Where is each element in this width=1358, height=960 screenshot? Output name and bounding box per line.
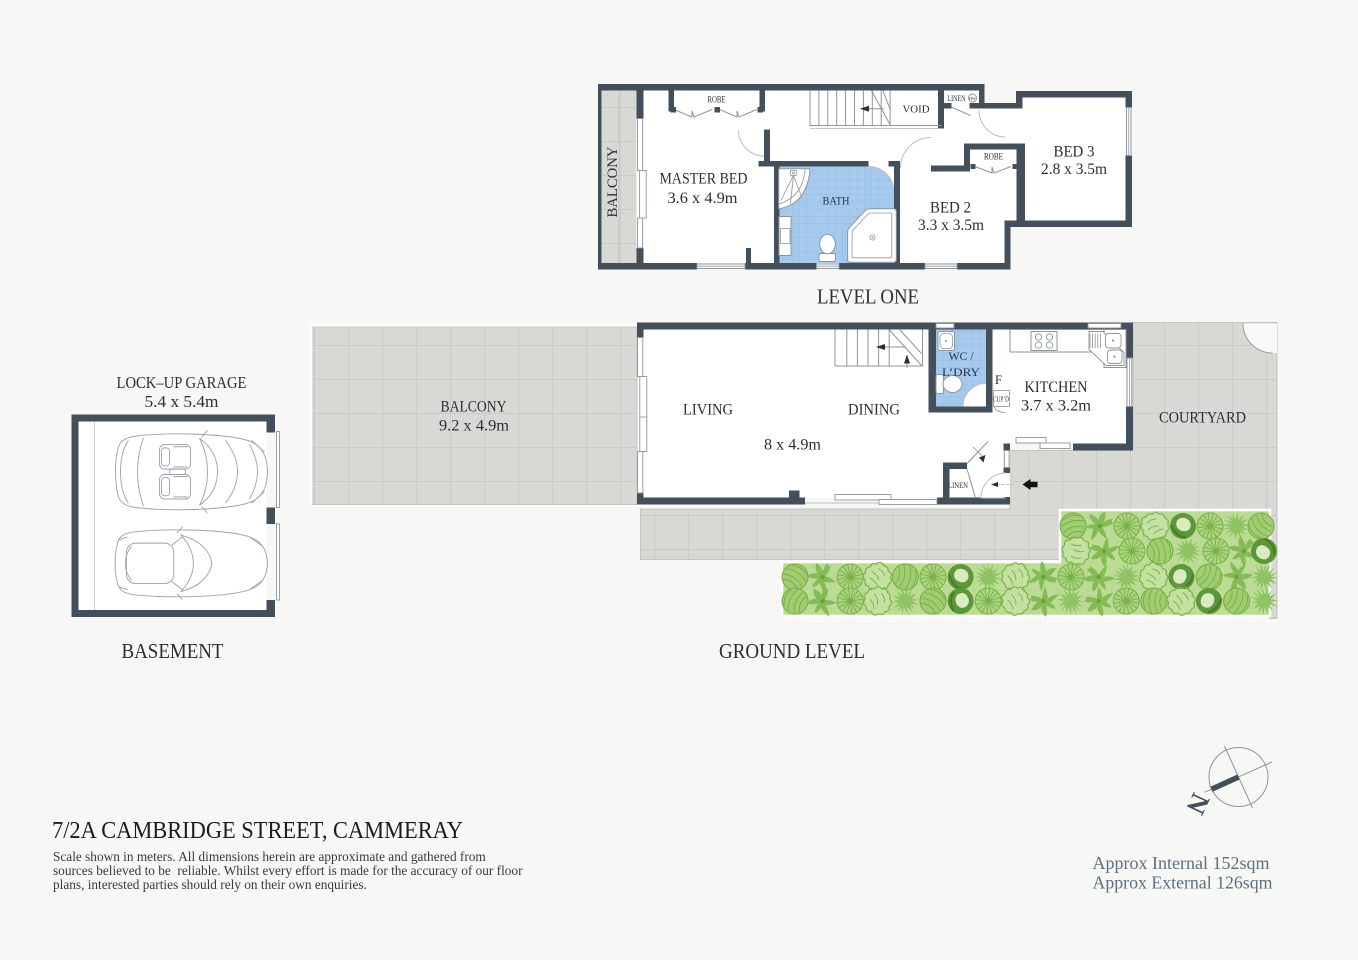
svg-text:3.3 x 3.5m: 3.3 x 3.5m: [918, 217, 985, 234]
svg-text:BASEMENT: BASEMENT: [122, 639, 224, 663]
svg-text:ROBE: ROBE: [984, 153, 1003, 163]
svg-text:LOCK–UP GARAGE: LOCK–UP GARAGE: [117, 373, 247, 392]
svg-text:ROBE: ROBE: [708, 96, 726, 106]
svg-text:GROUND LEVEL: GROUND LEVEL: [719, 639, 865, 663]
svg-text:LINEN: LINEN: [948, 480, 968, 490]
svg-text:3.6 x 4.9m: 3.6 x 4.9m: [668, 190, 739, 207]
svg-text:2.8 x 3.5m: 2.8 x 3.5m: [1041, 161, 1108, 178]
svg-text:Approx Internal 152sqm: Approx Internal 152sqm: [1093, 853, 1270, 873]
svg-text:BED 2: BED 2: [930, 200, 971, 217]
svg-text:WC /: WC /: [949, 351, 975, 363]
svg-text:L’DRY: L’DRY: [942, 367, 981, 379]
svg-text:KITCHEN: KITCHEN: [1025, 379, 1088, 396]
svg-text:VOID: VOID: [903, 103, 930, 115]
svg-text:DINING: DINING: [848, 402, 900, 419]
svg-text:7/2A CAMBRIDGE STREET, CAMMERA: 7/2A CAMBRIDGE STREET, CAMMERAY: [52, 817, 463, 844]
svg-text:BALCONY: BALCONY: [441, 399, 507, 416]
svg-text:LIVING: LIVING: [683, 402, 733, 419]
svg-text:COURTYARD: COURTYARD: [1159, 410, 1246, 427]
svg-text:MASTER BED: MASTER BED: [660, 171, 748, 188]
svg-text:BATH: BATH: [823, 196, 850, 208]
svg-text:Approx External 126sqm: Approx External 126sqm: [1093, 873, 1273, 893]
svg-text:HW: HW: [969, 96, 976, 101]
svg-text:plans, interested parties shou: plans, interested parties should rely on…: [53, 877, 367, 892]
svg-text:sources believed to be reliab: sources believed to be reliable. Whilst …: [53, 863, 523, 878]
svg-text:F: F: [995, 373, 1002, 387]
svg-text:Scale shown in meters. All dim: Scale shown in meters. All dimensions he…: [53, 849, 486, 864]
svg-text:LEVEL ONE: LEVEL ONE: [817, 285, 919, 309]
svg-text:LINEN: LINEN: [948, 94, 966, 103]
svg-text:BALCONY: BALCONY: [605, 146, 621, 218]
svg-text:8 x 4.9m: 8 x 4.9m: [764, 437, 822, 454]
svg-text:5.4 x 5.4m: 5.4 x 5.4m: [145, 392, 219, 411]
svg-text:BED 3: BED 3: [1054, 144, 1095, 161]
svg-text:9.2 x 4.9m: 9.2 x 4.9m: [439, 418, 510, 435]
svg-text:CUP’D: CUP’D: [993, 396, 1009, 404]
svg-text:3.7 x 3.2m: 3.7 x 3.2m: [1021, 398, 1092, 415]
